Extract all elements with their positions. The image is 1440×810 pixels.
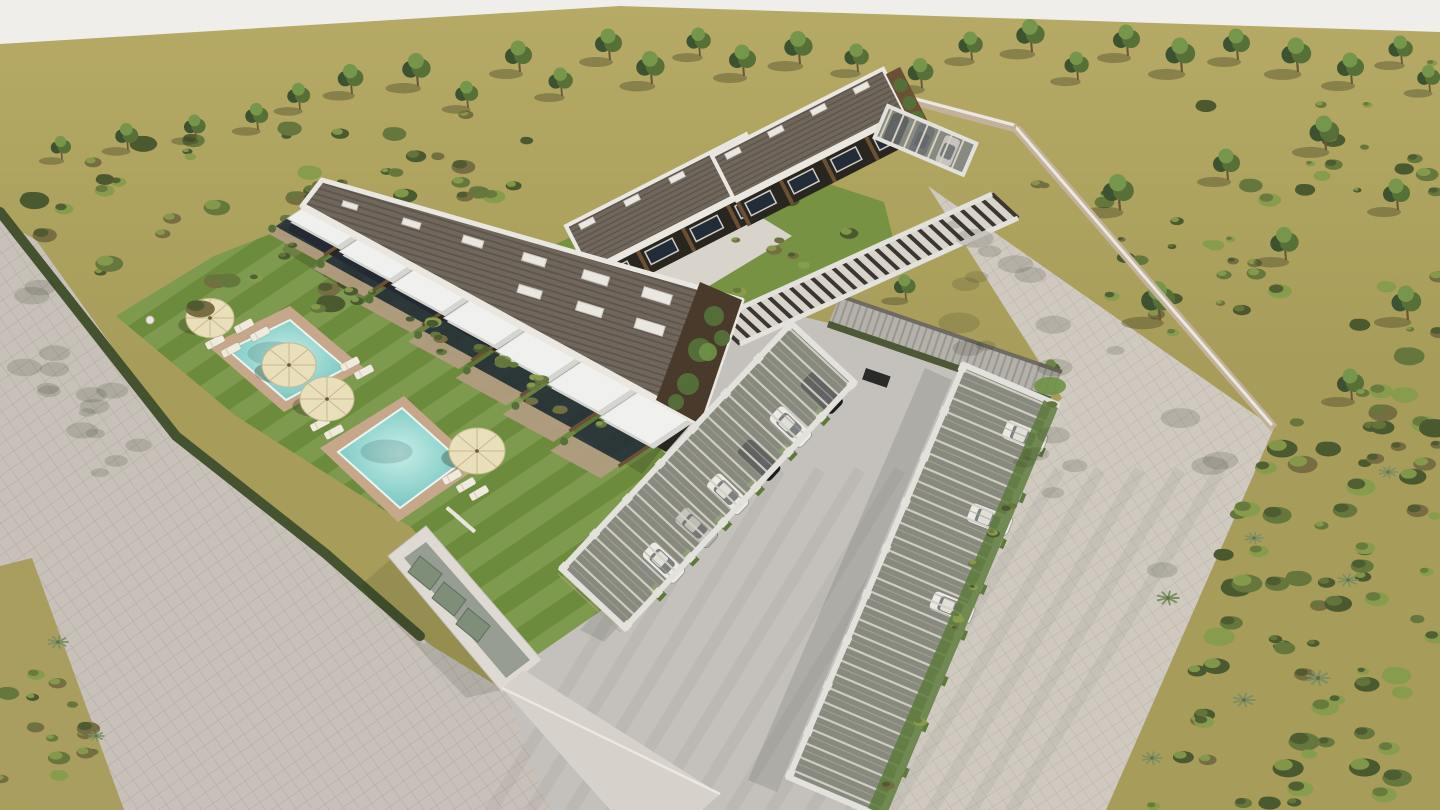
scrub-bush <box>1204 628 1235 646</box>
bush-top <box>1203 240 1210 244</box>
scrub-bush <box>310 304 326 313</box>
scrub-bush <box>1416 168 1439 181</box>
scrub-bush <box>787 253 798 260</box>
tree-canopy-light <box>1393 35 1407 49</box>
tree-canopy-light <box>1022 19 1038 35</box>
scrub-bush <box>331 128 349 138</box>
tree-shadow <box>944 57 975 66</box>
dappled-shadow <box>978 246 1001 258</box>
bush-top <box>344 287 353 292</box>
dappled-shadow <box>947 220 963 228</box>
scrub-bush <box>1371 787 1397 802</box>
tree-shadow <box>323 91 355 101</box>
scrub-bush <box>1233 305 1251 315</box>
scrub-bush <box>1249 545 1269 556</box>
bush-top <box>1352 560 1366 568</box>
scrub-bush <box>431 153 444 161</box>
bush-top <box>1204 658 1220 668</box>
bush-top <box>1393 687 1405 694</box>
tree-shadow <box>713 73 747 83</box>
bush-top <box>1308 640 1315 644</box>
bush-top <box>34 228 49 237</box>
scrub-bush <box>277 122 301 136</box>
scrub-bush <box>1226 237 1236 243</box>
agave-core <box>56 640 59 643</box>
tree-shadow <box>489 69 523 79</box>
scrub-bush <box>26 694 39 701</box>
bush-top <box>1197 100 1210 108</box>
bush-top <box>1378 281 1390 288</box>
scrub-bush <box>1203 240 1215 247</box>
scrub-bush <box>1267 440 1298 458</box>
tree-canopy-light <box>553 67 567 81</box>
bush-top <box>1215 549 1227 556</box>
bush-top <box>1290 733 1309 744</box>
umbrella-pole <box>325 397 329 401</box>
bush-top <box>1256 461 1269 469</box>
bush-top <box>1314 171 1324 177</box>
scrub-bush <box>1353 188 1361 193</box>
bush-top <box>1356 677 1371 686</box>
scrub-bush <box>1001 506 1010 511</box>
bush-top <box>733 288 742 293</box>
dappled-shadow <box>1037 427 1070 444</box>
bush-top <box>788 253 795 257</box>
scrub-bush <box>1287 798 1301 806</box>
scrub-bush <box>1199 755 1217 765</box>
bush-top <box>914 718 922 723</box>
tree-canopy-light <box>963 31 977 45</box>
bush-top <box>1408 154 1417 160</box>
scrub-bush <box>249 274 262 282</box>
agave-core <box>95 735 98 738</box>
tree-shadow <box>274 107 303 116</box>
dappled-shadow <box>1035 316 1071 334</box>
bush-top <box>389 168 398 173</box>
tree-canopy-light <box>460 81 473 94</box>
scrub-bush <box>553 405 568 414</box>
scrub-bush <box>1273 759 1304 777</box>
bush-top <box>1234 305 1245 312</box>
bush-top <box>407 150 419 157</box>
bush-top <box>27 694 35 699</box>
scrub-bush <box>1288 733 1319 751</box>
scrub-bush <box>406 150 426 162</box>
scrub-bush <box>1369 384 1393 398</box>
tree-canopy-light <box>55 136 66 147</box>
scrub-bush <box>344 287 359 295</box>
bush-top <box>406 317 411 320</box>
scrub-bush <box>1290 418 1304 426</box>
scrub-bush <box>288 243 297 248</box>
scrub-bush <box>49 678 67 688</box>
scrub-bush <box>96 174 115 185</box>
scrub-bush <box>774 238 784 244</box>
bush-top <box>1295 668 1308 676</box>
bush-top <box>97 174 108 181</box>
bush-top <box>1296 184 1308 191</box>
bush-top <box>96 185 108 192</box>
scrub-bush <box>1269 635 1283 643</box>
bush-top <box>1040 182 1046 186</box>
dappled-shadow <box>91 468 109 477</box>
agave-core <box>1253 537 1256 540</box>
scrub-bush <box>914 718 927 726</box>
scrub-bush <box>1315 442 1341 457</box>
bush-top <box>1356 389 1364 394</box>
tree-shadow <box>171 137 198 145</box>
bush-top <box>732 237 737 240</box>
tree-canopy-light <box>601 29 616 44</box>
scrub-bush <box>426 320 438 327</box>
tree-canopy-light <box>1389 179 1404 194</box>
bush-top <box>1171 217 1179 222</box>
tree-shadow <box>102 147 131 156</box>
scrub-bush <box>1227 258 1239 265</box>
tree-shadow <box>881 297 908 305</box>
tree-canopy-light <box>913 58 927 72</box>
tree-shadow <box>767 61 803 71</box>
bush-top <box>434 335 443 340</box>
tree-shadow <box>830 69 861 78</box>
outdoor-shower <box>146 316 154 324</box>
tree-canopy-light <box>1343 53 1358 68</box>
scrub-bush <box>1220 616 1243 629</box>
scrub-bush <box>1377 281 1397 292</box>
scrub-bush <box>840 228 858 239</box>
scrub-bush <box>1351 560 1374 573</box>
dappled-shadow <box>7 359 42 376</box>
scrub-bush <box>1307 640 1319 647</box>
bush-top <box>535 375 544 380</box>
agave-core <box>1346 578 1349 581</box>
scrub-bush <box>456 192 473 202</box>
bush-top <box>1118 237 1123 240</box>
scrub-bush <box>85 157 102 167</box>
dappled-shadow <box>1062 459 1087 472</box>
bush-top <box>1287 571 1303 581</box>
scrub-bush <box>433 335 447 343</box>
bush-top <box>1008 503 1014 506</box>
scrub-bush <box>1239 179 1263 193</box>
tree-canopy-light <box>1422 65 1435 78</box>
bush-top <box>1216 300 1222 303</box>
tree-shadow <box>1253 257 1289 268</box>
bush-top <box>1373 787 1388 796</box>
bush-top <box>51 770 62 777</box>
bush-top <box>1414 457 1428 465</box>
bush-top <box>1384 769 1402 780</box>
bush-top <box>495 358 505 364</box>
scrub-bush <box>1314 171 1331 181</box>
scrub-bush <box>1195 100 1216 112</box>
bush-top <box>1274 759 1293 770</box>
tree-shadow <box>232 127 261 135</box>
scrub-bush <box>1288 456 1318 473</box>
agave-core <box>1387 471 1390 474</box>
bush-top <box>521 137 529 142</box>
scrub-bush <box>185 153 196 160</box>
architectural-render-viewport <box>0 0 1440 810</box>
bush-top <box>474 344 483 350</box>
scrub-bush <box>389 168 404 177</box>
bush-top <box>1221 616 1235 624</box>
scrub-bush <box>452 177 471 188</box>
scrub-bush <box>1104 292 1120 301</box>
tree-canopy-light <box>292 83 305 96</box>
tree-shadow <box>999 49 1035 60</box>
scrub-bush <box>1354 677 1379 692</box>
umbrella-pole <box>475 449 479 453</box>
bush-top <box>1358 668 1365 672</box>
scrub-bush <box>95 256 123 272</box>
scrub-bush <box>1147 802 1161 810</box>
tree-canopy-light <box>642 51 658 67</box>
scrub-bush <box>732 288 747 297</box>
bush-top <box>1427 60 1433 64</box>
bush-top <box>1195 709 1208 717</box>
scrub-bush <box>1407 154 1423 163</box>
scrub-bush <box>473 344 489 353</box>
scrub-bush <box>1382 769 1412 786</box>
umbrella-pole <box>287 363 291 367</box>
patio-planter <box>414 331 422 339</box>
scrub-bush <box>451 160 475 174</box>
agave-core <box>1166 596 1170 600</box>
bush-top <box>452 177 463 184</box>
tree-shadow <box>1148 69 1185 80</box>
scrub-bush <box>1349 758 1380 776</box>
scrub-bush <box>155 229 170 238</box>
scrub-bush <box>50 770 68 781</box>
bush-top <box>554 405 563 410</box>
bush-top <box>55 204 66 211</box>
scrub-bush <box>988 530 998 536</box>
tree-canopy-light <box>511 41 526 56</box>
scrub-bush <box>20 192 50 209</box>
bush-top <box>86 157 96 163</box>
bush-top <box>250 274 258 279</box>
tree-shadow <box>1367 207 1401 217</box>
dappled-shadow <box>1147 562 1178 578</box>
bush-top <box>1288 798 1296 803</box>
scrub-bush <box>1287 781 1313 796</box>
bush-top <box>318 283 332 291</box>
bush-top <box>1235 502 1251 512</box>
scrub-bush <box>1395 163 1414 174</box>
dappled-shadow <box>1203 452 1239 470</box>
bush-top <box>1356 542 1368 549</box>
scrub-bush <box>1391 442 1407 451</box>
scrub-bush <box>1039 182 1049 188</box>
scrub-bush <box>95 185 115 197</box>
bush-top <box>1260 194 1274 202</box>
bush-top <box>1351 758 1370 769</box>
bush-top <box>1411 615 1420 620</box>
bush-top <box>49 678 60 684</box>
tree-shadow <box>1374 317 1411 328</box>
bush-top <box>1370 384 1384 393</box>
bush-top <box>1313 699 1330 709</box>
tree-shadow <box>1121 317 1164 330</box>
bush-top <box>1174 751 1187 759</box>
agave-core <box>1150 756 1153 759</box>
scrub-bush <box>1346 479 1375 496</box>
dappled-shadow <box>956 229 994 248</box>
bush-top <box>1429 512 1437 517</box>
tree-shadow <box>39 157 65 165</box>
scrub-bush <box>1406 327 1414 332</box>
scrub-bush <box>1357 668 1369 675</box>
dappled-shadow <box>125 439 151 452</box>
bush-top <box>969 585 974 588</box>
bush-top <box>952 626 956 628</box>
bush-top <box>1264 507 1281 517</box>
tree-canopy-light <box>1219 149 1234 164</box>
bush-top <box>1268 440 1286 451</box>
scrub-bush <box>766 245 782 254</box>
tree-canopy-light <box>1276 227 1292 243</box>
bush-top <box>954 613 959 616</box>
scrub-bush <box>798 262 810 269</box>
scrub-bush <box>46 735 58 742</box>
bush-top <box>21 192 39 203</box>
tree-shadow <box>1321 397 1355 407</box>
scrub-bush <box>731 237 740 242</box>
bush-top <box>68 701 75 705</box>
bush-top <box>953 616 960 620</box>
bush-top <box>1319 578 1329 584</box>
scrub-bush <box>1216 300 1226 306</box>
scrub-bush <box>32 228 56 242</box>
scrub-bush <box>1235 798 1252 808</box>
tree-canopy-light <box>1069 51 1083 64</box>
tree-shadow <box>579 57 613 67</box>
bush-top <box>1168 244 1173 247</box>
dappled-shadow <box>1161 408 1201 428</box>
dappled-shadow <box>40 362 69 377</box>
bush-top <box>279 253 286 257</box>
patio-planter <box>365 296 373 304</box>
bush-top <box>1260 797 1273 805</box>
tree-shadow <box>1207 57 1241 67</box>
bush-top <box>156 229 165 234</box>
bush-top <box>218 274 232 283</box>
scrub-bush <box>406 317 415 322</box>
dappled-shadow <box>1037 359 1073 377</box>
bush-top <box>526 397 534 402</box>
tree-canopy-light <box>735 45 750 60</box>
scrub-bush <box>382 127 406 141</box>
bush-top <box>1228 258 1235 262</box>
scrub-bush <box>1274 642 1295 654</box>
bush-top <box>97 256 114 266</box>
scrub-bush <box>520 137 533 144</box>
dappled-shadow <box>105 455 128 467</box>
scrub-bush <box>1255 461 1277 474</box>
scrub-bush <box>1258 194 1281 207</box>
tree-shadow <box>1374 61 1405 70</box>
bush-top <box>1400 469 1416 479</box>
scrub-bush <box>1301 750 1317 759</box>
bush-top <box>1311 600 1322 607</box>
bush-top <box>1266 577 1281 586</box>
bush-top <box>384 127 398 136</box>
scrub-bush <box>1317 737 1334 747</box>
bush-top <box>527 383 535 388</box>
bush-top <box>332 128 343 134</box>
bush-top <box>1420 568 1428 573</box>
plaza-planter <box>1034 377 1066 395</box>
scrub-bush <box>881 782 895 790</box>
ivy-green-end-wall <box>668 394 684 410</box>
scrub-bush <box>278 253 290 260</box>
bush-top <box>1302 750 1311 756</box>
bush-top <box>1350 319 1363 327</box>
bush-top <box>1421 419 1440 430</box>
bush-top <box>506 181 516 187</box>
bush-top <box>1217 271 1226 276</box>
bush-top <box>1348 479 1366 490</box>
scrub-bush <box>1306 161 1315 166</box>
scrub-bush <box>1247 269 1266 280</box>
bush-top <box>1370 405 1387 415</box>
tree-shadow <box>1097 53 1131 63</box>
scrub-bush <box>1407 504 1429 517</box>
scrub-bush <box>297 166 321 180</box>
scrub-bush <box>952 626 959 630</box>
scrub-bush <box>968 560 981 567</box>
scrub-bush <box>495 358 512 368</box>
dappled-shadow <box>1042 487 1064 498</box>
scrub-bush <box>1392 687 1413 699</box>
patio-planter <box>317 260 325 268</box>
bush-top <box>28 670 39 676</box>
bush-top <box>1326 596 1343 606</box>
scrub-bush <box>1324 596 1352 612</box>
agave-core <box>1316 676 1320 680</box>
bush-top <box>1167 329 1175 334</box>
scrub-bush <box>595 421 606 428</box>
dappled-shadow <box>965 271 988 283</box>
bush-top <box>1354 188 1359 191</box>
tree-shadow <box>1050 77 1081 86</box>
scrub-bush <box>534 375 549 384</box>
scrub-bush <box>952 616 964 623</box>
bush-top <box>1235 798 1245 804</box>
bush-top <box>368 290 373 293</box>
dappled-shadow <box>39 345 70 361</box>
bush-top <box>453 160 467 169</box>
tree-canopy-light <box>790 31 806 47</box>
bush-top <box>427 320 434 324</box>
tree-canopy-light <box>188 114 200 126</box>
bush-top <box>1147 802 1155 807</box>
scrub-bush <box>1231 575 1262 593</box>
tree-canopy-light <box>250 103 263 116</box>
bush-top <box>1306 161 1312 164</box>
tree-canopy-light <box>898 274 910 286</box>
bush-top <box>1408 504 1421 512</box>
pool-water-shadow <box>361 440 413 464</box>
scrub-bush <box>1365 592 1389 606</box>
scrub-bush <box>1214 549 1234 561</box>
scrub-bush <box>526 383 539 391</box>
bush-top <box>183 148 189 152</box>
tree-shadow <box>442 105 471 114</box>
bush-top <box>28 722 38 728</box>
scrub-bush <box>27 670 45 680</box>
